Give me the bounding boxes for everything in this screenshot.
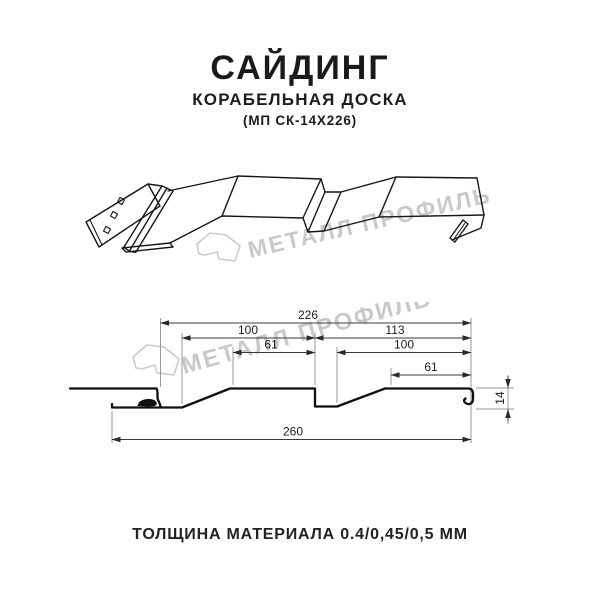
dim-height: 14	[493, 391, 507, 405]
product-drawing-page: САЙДИНГ КОРАБЕЛЬНАЯ ДОСКА (МП СК-14Х226)…	[0, 0, 600, 600]
watermark-text: МЕТАЛЛ ПРОФИЛЬ	[245, 182, 493, 263]
dim-mid-right: 100	[394, 338, 414, 352]
dim-lower-right: 61	[424, 360, 438, 374]
lock-fold	[122, 184, 173, 252]
dim-upper-right: 113	[385, 323, 404, 337]
product-subtitle: КОРАБЕЛЬНАЯ ДОСКА	[0, 90, 600, 110]
watermark-logo-icon	[197, 233, 240, 261]
profile-outline	[70, 389, 473, 408]
dim-overall-top: 226	[298, 308, 318, 322]
cross-section-drawing: МЕТАЛЛ ПРОФИЛЬ 226	[60, 302, 530, 448]
nail-hole-icon	[111, 212, 118, 219]
product-model-code: (МП СК-14Х226)	[0, 113, 600, 128]
header: САЙДИНГ КОРАБЕЛЬНАЯ ДОСКА (МП СК-14Х226)	[0, 0, 600, 128]
nail-strip	[86, 184, 160, 247]
panel-right-edge-fold	[450, 215, 484, 242]
profile-3d-drawing: МЕТАЛЛ ПРОФИЛЬ	[60, 150, 500, 282]
page-title: САЙДИНГ	[0, 0, 600, 86]
material-thickness-note: ТОЛЩИНА МАТЕРИАЛА 0.4/0,45/0,5 ММ	[0, 526, 600, 544]
lock-hook	[138, 399, 156, 406]
nail-hole-icon	[104, 227, 111, 234]
watermark-logo-icon	[133, 345, 179, 375]
dim-upper-left: 100	[238, 323, 258, 337]
dim-mid-left: 61	[264, 338, 278, 352]
dim-overall-bottom: 260	[283, 425, 303, 439]
